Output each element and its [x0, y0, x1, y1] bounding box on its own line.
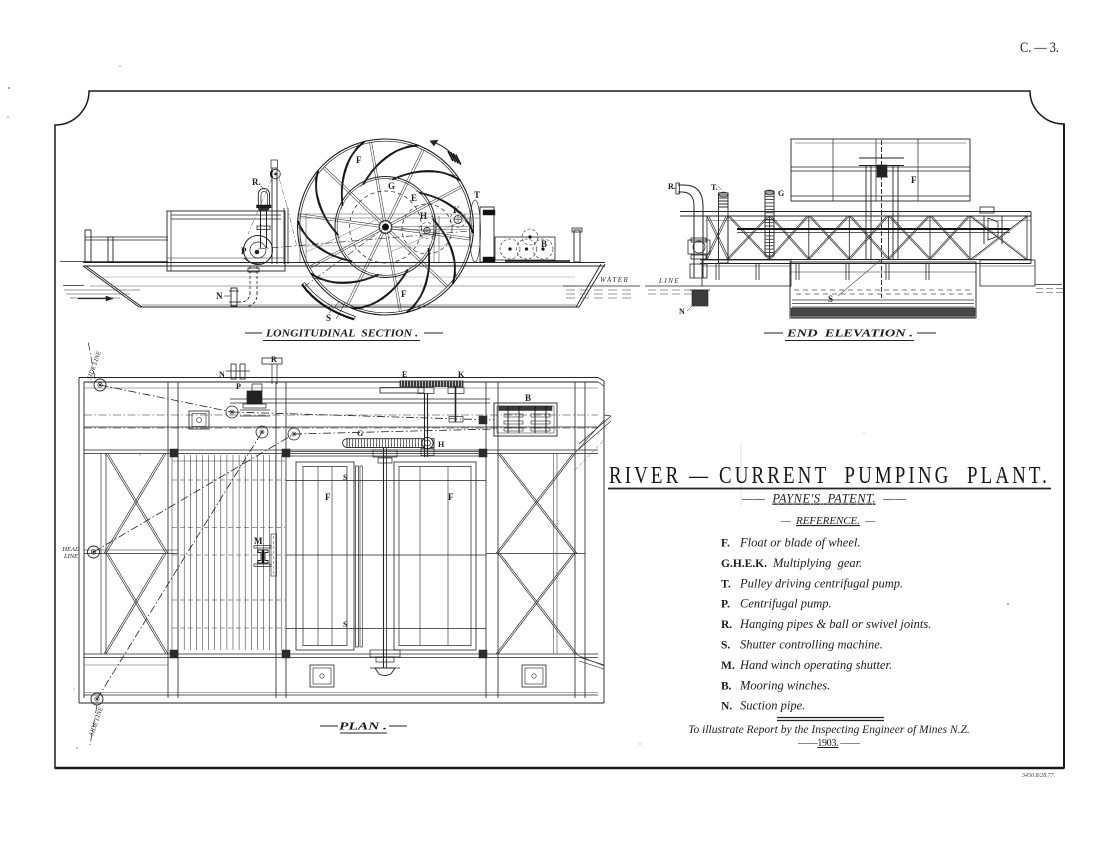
- svg-text:LINE: LINE: [63, 553, 78, 560]
- svg-text:M.: M.: [721, 660, 735, 672]
- svg-text:C. — 3.: C. — 3.: [1020, 40, 1059, 56]
- svg-text:S: S: [343, 473, 348, 482]
- svg-text:P: P: [241, 246, 247, 256]
- svg-text:K: K: [453, 205, 460, 215]
- svg-text:F: F: [356, 155, 362, 165]
- svg-text:T: T: [474, 190, 480, 200]
- svg-text:B.: B.: [721, 680, 732, 692]
- svg-text:H: H: [420, 211, 427, 221]
- svg-text:S: S: [326, 313, 331, 323]
- svg-text:N: N: [679, 307, 685, 316]
- svg-text:3450.8/28.77.: 3450.8/28.77.: [1021, 772, 1055, 779]
- svg-text:G.H.E.K.: G.H.E.K.: [721, 558, 767, 570]
- svg-text:E: E: [402, 370, 407, 379]
- svg-text:G: G: [388, 181, 395, 191]
- svg-text:G: G: [778, 189, 784, 198]
- svg-text:N: N: [219, 370, 225, 379]
- svg-text:Suction pipe.: Suction pipe.: [740, 699, 805, 713]
- svg-text:B: B: [541, 239, 547, 249]
- svg-text:Hand winch operating shutter.: Hand winch operating shutter.: [739, 658, 892, 672]
- svg-text:H: H: [438, 440, 445, 449]
- svg-text:To illustrate Report by the In: To illustrate Report by the Inspecting E…: [688, 724, 970, 736]
- svg-text:P: P: [236, 382, 241, 391]
- svg-text:— REFERENCE. —: — REFERENCE. —: [780, 515, 875, 527]
- svg-text:N.: N.: [721, 701, 732, 713]
- svg-text:R.: R.: [721, 619, 732, 631]
- svg-text:K: K: [458, 370, 465, 379]
- svg-text:R: R: [271, 355, 277, 364]
- svg-text:Multiplying gear.: Multiplying gear.: [772, 556, 862, 570]
- svg-text:E: E: [411, 193, 417, 203]
- svg-text:N: N: [216, 291, 223, 301]
- svg-text:Shutter controlling machine.: Shutter controlling machine.: [740, 638, 883, 652]
- svg-text:F: F: [911, 175, 917, 185]
- svg-text:HEAD: HEAD: [61, 546, 80, 553]
- svg-text:Hanging pipes & ball or swivel: Hanging pipes & ball or swivel joints.: [739, 617, 931, 631]
- svg-text:M: M: [254, 536, 263, 546]
- svg-text:B: B: [525, 393, 531, 403]
- svg-text:R.: R.: [252, 177, 261, 187]
- svg-text:WATER: WATER: [600, 276, 629, 284]
- svg-text:Float or blade of wheel.: Float or blade of wheel.: [739, 536, 860, 550]
- svg-text:T.: T.: [711, 183, 718, 192]
- svg-text:RIVER — CURRENT PUMPING PLAN: RIVER — CURRENT PUMPING PLANT.: [609, 462, 1050, 489]
- svg-text:T.: T.: [721, 578, 731, 590]
- svg-text:F: F: [448, 492, 454, 502]
- svg-text:F: F: [325, 492, 331, 502]
- svg-text:PLAN .: PLAN .: [339, 722, 387, 733]
- svg-text:G: G: [357, 429, 363, 438]
- svg-text:Centrifugal pump.: Centrifugal pump.: [740, 597, 832, 611]
- svg-text:Mooring winches.: Mooring winches.: [739, 678, 830, 692]
- svg-text:P.: P.: [721, 599, 730, 611]
- svg-text:F: F: [401, 289, 407, 299]
- svg-text:LONGITUDINAL SECTION .: LONGITUDINAL SECTION .: [265, 329, 418, 340]
- svg-text:——1903. ——: ——1903. ——: [797, 738, 861, 749]
- svg-text:R.: R.: [668, 182, 676, 191]
- svg-text:F.: F.: [721, 538, 730, 550]
- svg-text:LINE: LINE: [658, 277, 680, 285]
- svg-text:—— PAYNE'S PATENT. ——: —— PAYNE'S PATENT. ——: [741, 492, 907, 506]
- svg-text:S: S: [343, 620, 348, 629]
- svg-text:END ELEVATION .: END ELEVATION .: [786, 329, 913, 340]
- svg-text:S: S: [828, 294, 833, 304]
- svg-text:S.: S.: [721, 640, 730, 652]
- svg-text:SIDE LINE: SIDE LINE: [88, 706, 105, 736]
- svg-text:Pulley driving centrifugal pum: Pulley driving centrifugal pump.: [739, 576, 903, 590]
